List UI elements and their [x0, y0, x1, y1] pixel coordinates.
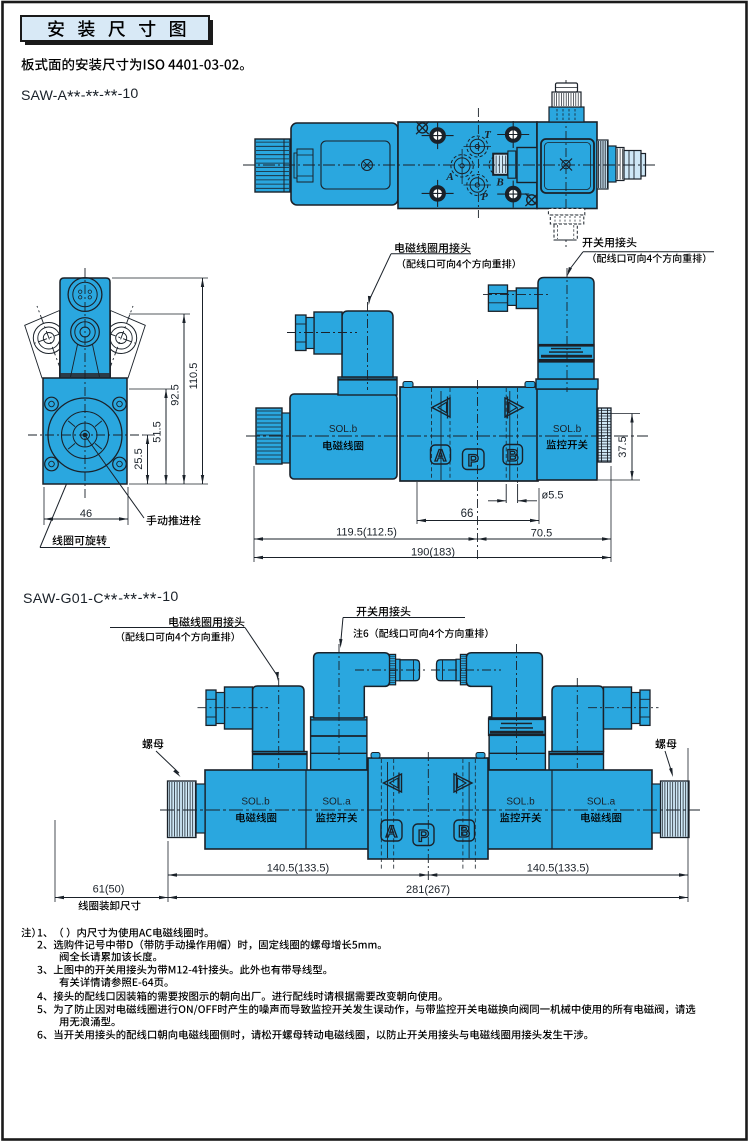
svg-text:A: A [435, 447, 447, 465]
svg-text:P: P [481, 191, 488, 203]
svg-text:P: P [418, 828, 429, 846]
svg-text:SOL.a: SOL.a [322, 797, 351, 808]
svg-text:SOL.b: SOL.b [241, 797, 270, 808]
svg-text:110.5: 110.5 [188, 363, 200, 390]
svg-text:A: A [445, 171, 453, 183]
svg-text:B: B [507, 447, 519, 465]
svg-text:61(50): 61(50) [93, 884, 125, 896]
svg-text:140.5(133.5): 140.5(133.5) [527, 863, 589, 875]
svg-text:190(183): 190(183) [411, 547, 455, 559]
svg-text:46: 46 [80, 508, 92, 520]
svg-text:92.5: 92.5 [170, 384, 182, 405]
svg-text:SAW-G01-C** -** -** -10: SAW-G01-C** -** -** -10 [23, 588, 179, 609]
svg-text:SOL.b: SOL.b [329, 424, 358, 435]
svg-text:ø5.5: ø5.5 [542, 490, 564, 502]
svg-text:70.5: 70.5 [531, 528, 552, 540]
svg-text:SOL.b: SOL.b [506, 797, 535, 808]
svg-text:SOL.b: SOL.b [553, 424, 582, 435]
svg-text:B: B [458, 823, 470, 841]
svg-text:B: B [495, 177, 503, 189]
svg-text:281(267): 281(267) [406, 884, 450, 896]
svg-text:37.5: 37.5 [617, 436, 629, 457]
svg-text:119.5(112.5): 119.5(112.5) [336, 527, 397, 539]
svg-text:25.5: 25.5 [133, 448, 145, 469]
svg-text:SOL.a: SOL.a [587, 797, 616, 808]
svg-text:66: 66 [461, 508, 474, 520]
svg-text:51.5: 51.5 [152, 421, 164, 442]
svg-text:140.5(133.5): 140.5(133.5) [267, 863, 329, 875]
